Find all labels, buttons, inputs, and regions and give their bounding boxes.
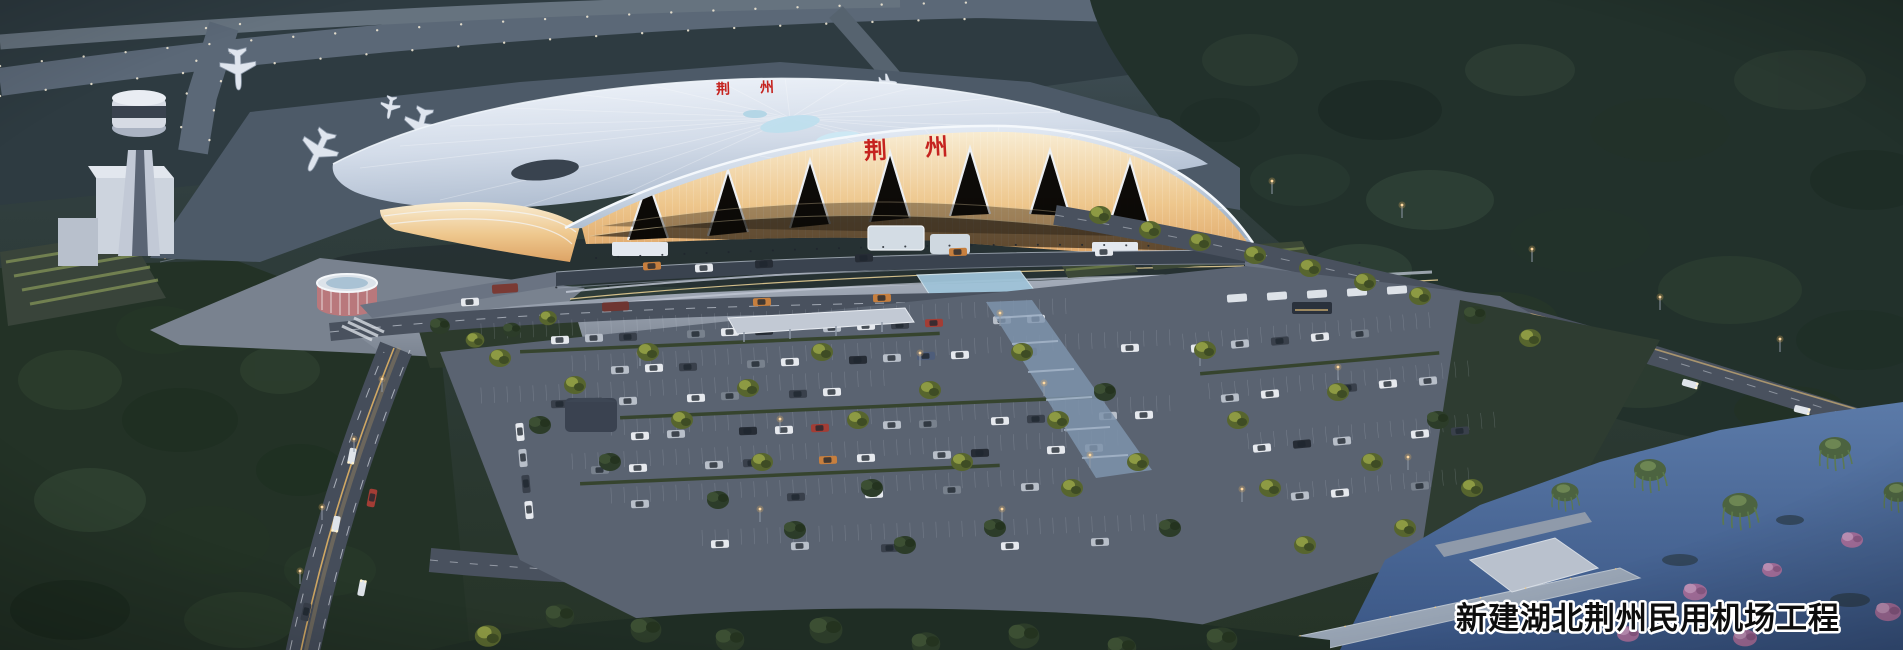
airport-rendering-scene: 荆州 荆州 — [0, 0, 1903, 650]
project-title-caption: 新建湖北荆州民用机场工程 — [1456, 601, 1840, 637]
airport-rendering: 荆州 荆州 — [0, 0, 1903, 650]
vignette — [0, 0, 1903, 650]
